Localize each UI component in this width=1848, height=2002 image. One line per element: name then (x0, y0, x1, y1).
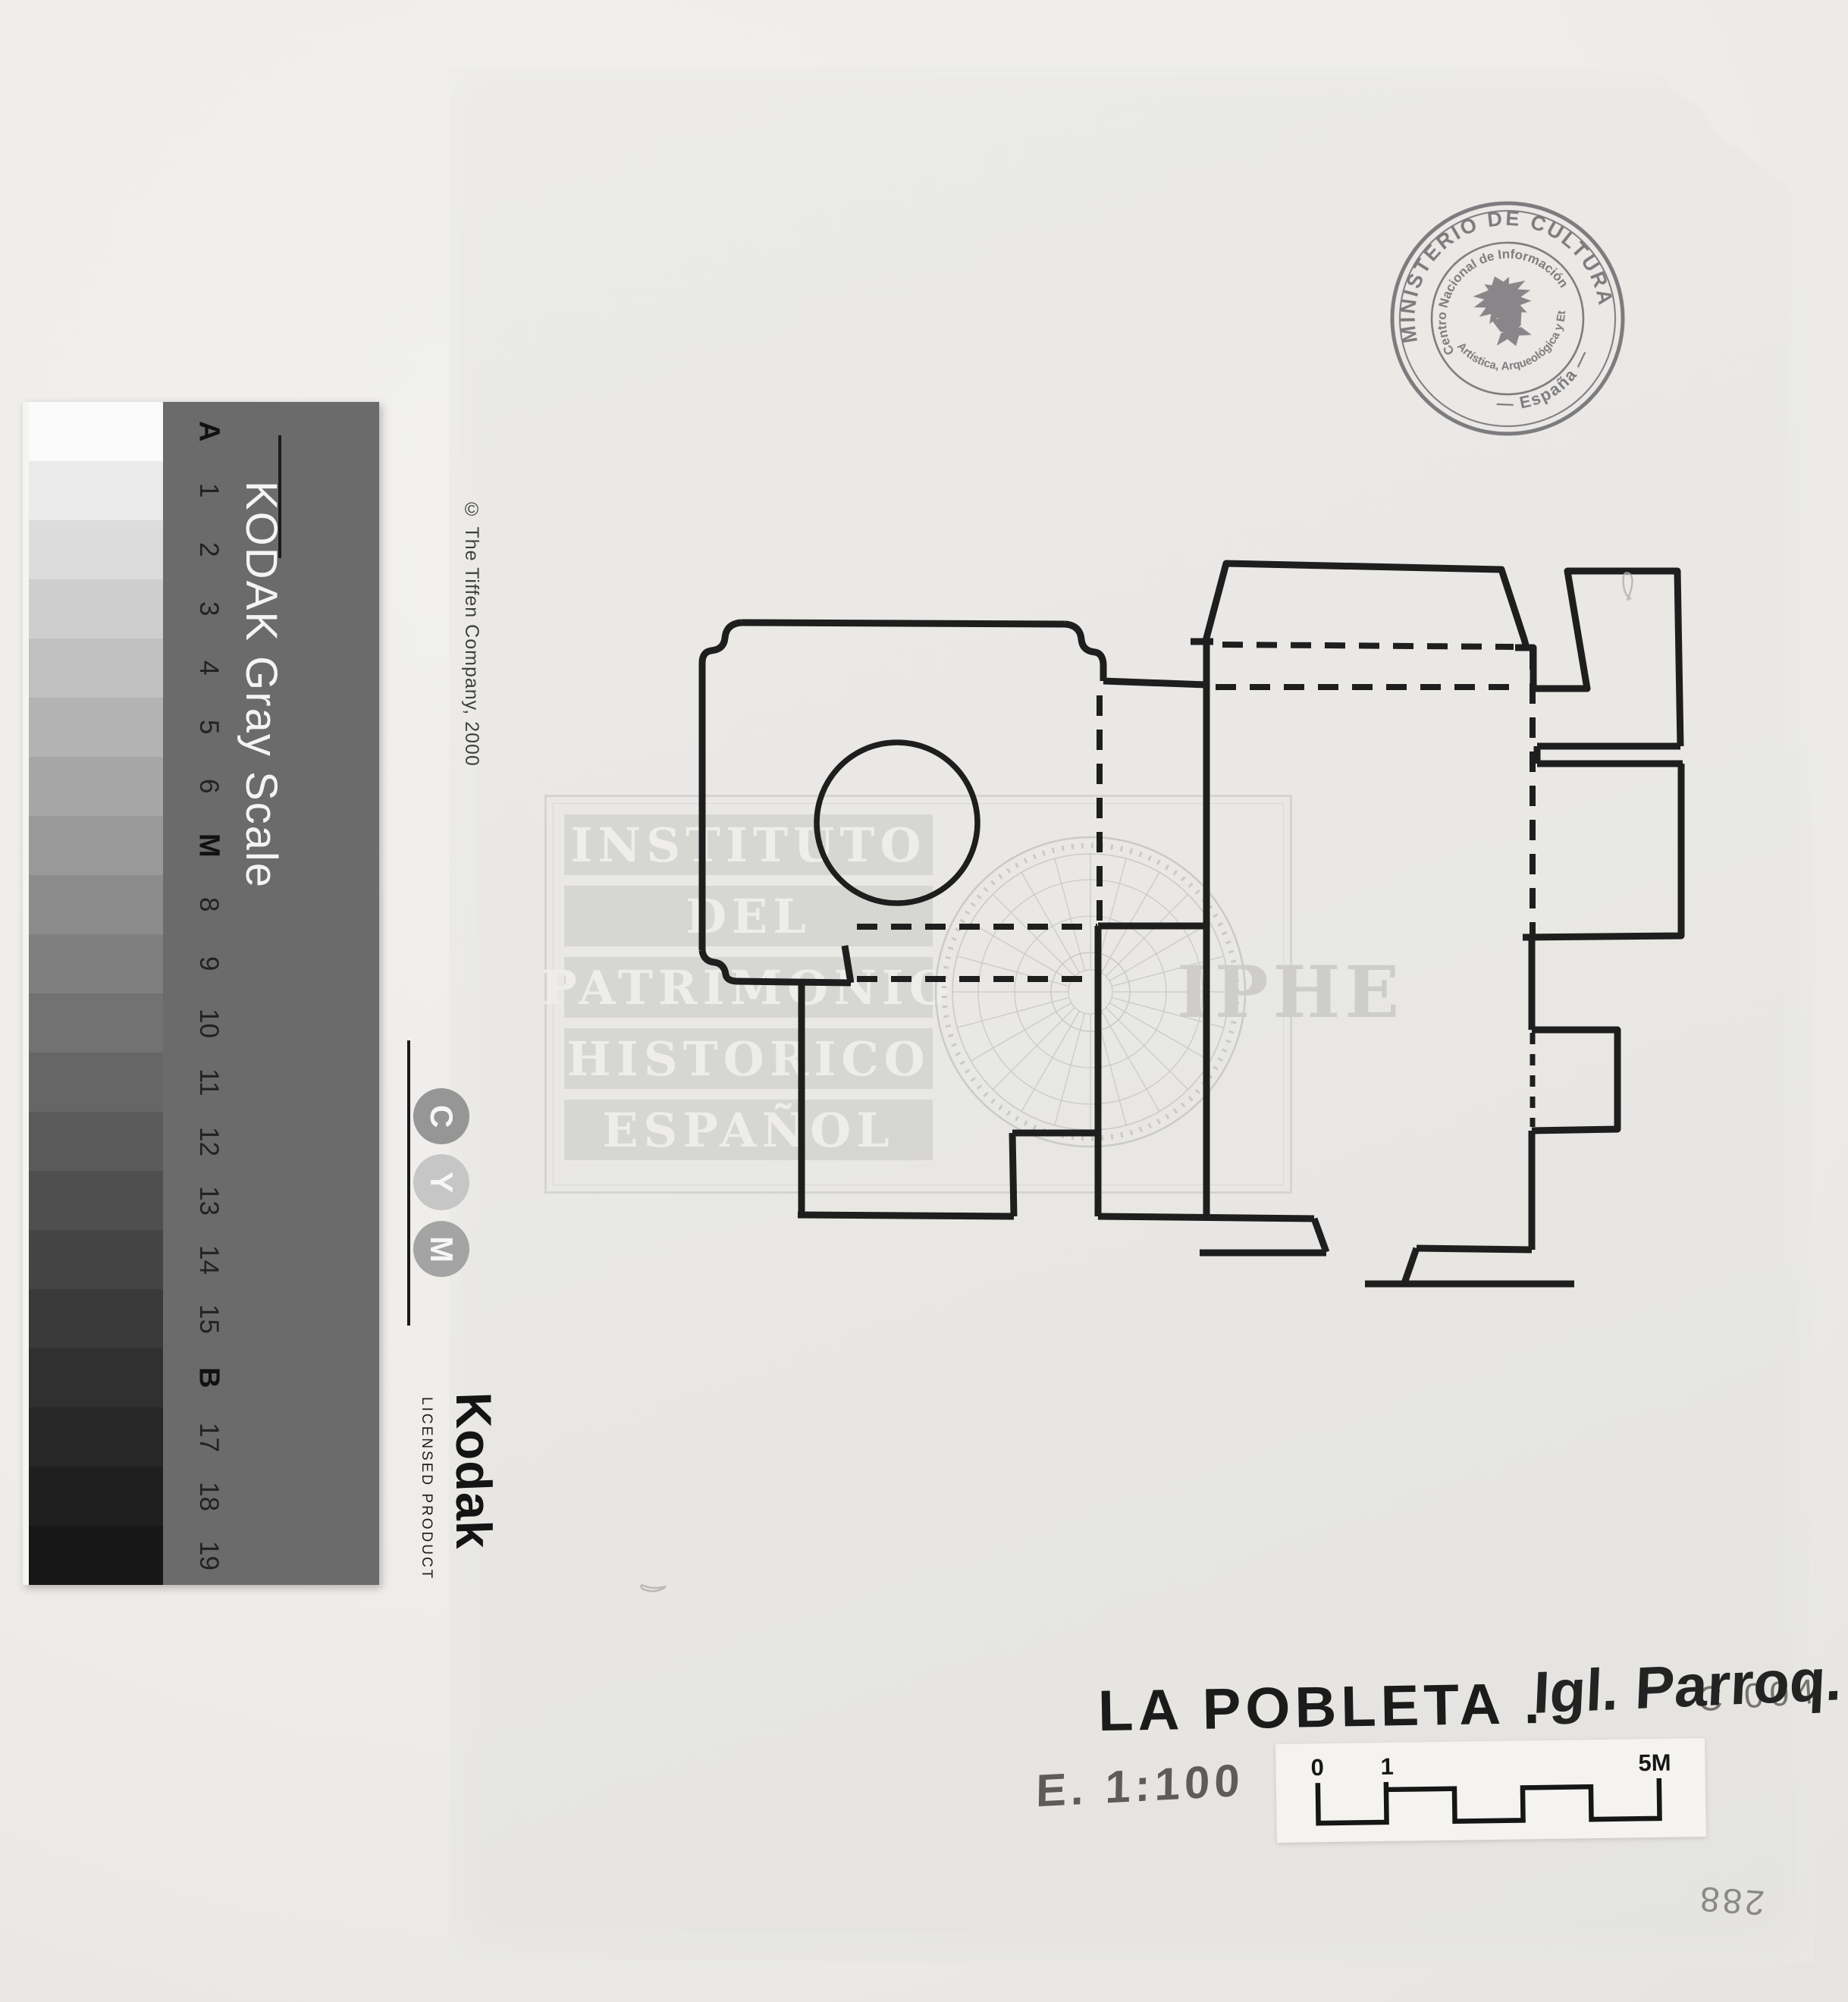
plan-south-wall (798, 1215, 1014, 1216)
scanned-archive-page: A123456M89101112131415B171819 KODAK Gray… (0, 0, 1848, 2002)
plan-scale-note: E. 1:100 (1036, 1754, 1245, 1818)
stamp-ring-top-text: MINISTERIO DE CULTURA (1369, 179, 1619, 369)
plan-title: LA POBLETA . (1097, 1671, 1545, 1744)
plan-nw-room (742, 623, 1065, 624)
svg-text:MINISTERIO DE CULTURA: MINISTERIO DE CULTURA (1369, 179, 1619, 369)
plan-ne-tower (1535, 571, 1680, 746)
eagle-emblem (1467, 268, 1545, 355)
scale-label-0: 0 (1310, 1754, 1324, 1781)
scale-label-1: 1 (1380, 1753, 1394, 1780)
graphic-scale-bar: 0 1 5M (1275, 1738, 1706, 1843)
scale-label-5m: 5M (1638, 1749, 1671, 1777)
plan-dome-circle (817, 742, 977, 903)
scale-bar-line (1318, 1778, 1660, 1823)
plan-subtitle: Igl. Parroq. (1532, 1645, 1843, 1727)
plan-dashed-vault-lines (1222, 645, 1514, 647)
plan-presbytery (1206, 563, 1526, 648)
pencil-squiggle (1624, 573, 1633, 601)
inventory-number: 288 (1696, 1878, 1765, 1924)
